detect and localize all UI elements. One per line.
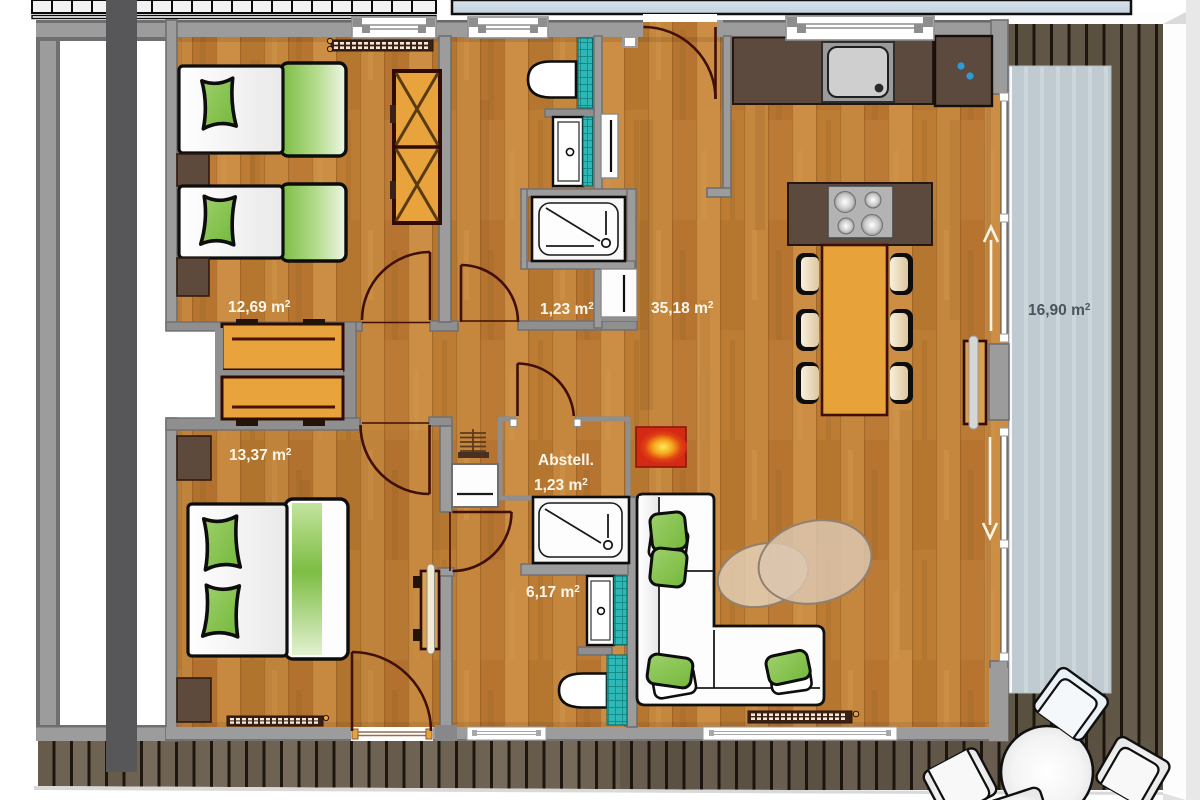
svg-text:16,90 m2: 16,90 m2 (1028, 302, 1091, 319)
svg-text:35,18 m2: 35,18 m2 (651, 300, 714, 317)
svg-text:1,23 m2: 1,23 m2 (540, 301, 594, 318)
svg-text:13,37 m2: 13,37 m2 (229, 447, 292, 464)
svg-text:Abstell.: Abstell. (538, 452, 594, 469)
svg-text:1,23 m2: 1,23 m2 (534, 477, 588, 494)
svg-text:6,17 m2: 6,17 m2 (526, 584, 580, 601)
svg-text:12,69 m2: 12,69 m2 (228, 299, 291, 316)
